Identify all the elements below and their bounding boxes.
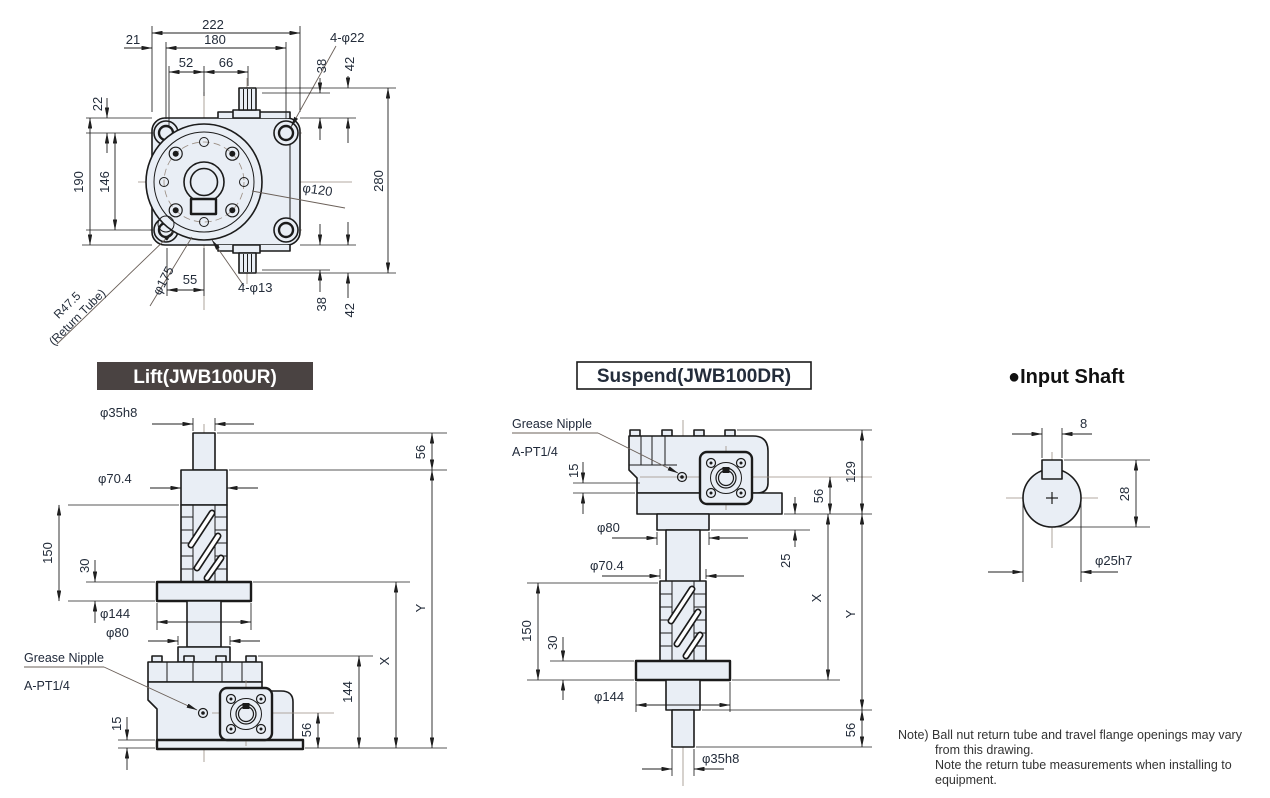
- suspend-grease-label-2: A-PT1/4: [512, 445, 558, 459]
- dim-38-top: 38: [314, 59, 329, 73]
- lift-input-keyway: [243, 703, 250, 709]
- suspend-dim-129: 129: [843, 461, 858, 483]
- dim-190: 190: [71, 171, 86, 193]
- dim-38-bottom: 38: [314, 297, 329, 311]
- lift-dim-30: 30: [77, 559, 92, 573]
- lift-dim-56-bottom: 56: [299, 723, 314, 737]
- dim-d175: φ175: [149, 264, 176, 298]
- lift-dim-d144: φ144: [100, 606, 130, 621]
- dim-222: 222: [202, 17, 224, 32]
- worm-wheel-flange-top: [146, 124, 262, 240]
- note-line-1: Note) Ball nut return tube and travel fl…: [898, 728, 1270, 743]
- dim-d120: φ120: [302, 180, 334, 199]
- dim-21: 21: [126, 32, 140, 47]
- suspend-dim-Y: Y: [843, 609, 858, 618]
- lift-dim-d80: φ80: [106, 625, 129, 640]
- suspend-dim-X: X: [809, 593, 824, 602]
- suspend-title: Suspend(JWB100DR): [597, 366, 791, 387]
- input-dim-d25: φ25h7: [1095, 553, 1132, 568]
- technical-drawing: 222 180 21 52 66 4-φ22 38 42: [0, 0, 1270, 798]
- dim-42-top: 42: [342, 57, 357, 71]
- lift-grease-label-2: A-PT1/4: [24, 679, 70, 693]
- lift-screw-assembly: [157, 433, 251, 647]
- input-shaft-view: ●Input Shaft 8 28 φ25h7: [988, 366, 1150, 582]
- dim-280: 280: [371, 170, 386, 192]
- lift-dim-X: X: [377, 656, 392, 665]
- suspend-dim-d35: φ35h8: [702, 751, 739, 766]
- drawing-note: Note) Ball nut return tube and travel fl…: [898, 728, 1270, 788]
- lift-grease-label-1: Grease Nipple: [24, 651, 104, 665]
- input-dim-8: 8: [1080, 416, 1087, 431]
- lift-dim-d35: φ35h8: [100, 405, 137, 420]
- suspend-view: Suspend(JWB100DR): [512, 362, 872, 786]
- dim-55: 55: [183, 272, 197, 287]
- suspend-grease-label-1: Grease Nipple: [512, 417, 592, 431]
- dim-4xd22: 4-φ22: [330, 30, 364, 45]
- note-line-3: Note the return tube measurements when i…: [898, 758, 1270, 773]
- suspend-dim-56-top: 56: [811, 489, 826, 503]
- lift-base-plate: [157, 740, 303, 749]
- suspend-gearbox: [629, 430, 872, 530]
- note-line-2: from this drawing.: [898, 743, 1270, 758]
- lift-dim-56-top: 56: [413, 445, 428, 459]
- dim-52: 52: [179, 55, 193, 70]
- dim-66: 66: [219, 55, 233, 70]
- input-shaft-key: [1042, 460, 1062, 479]
- suspend-dim-150: 150: [519, 620, 534, 642]
- dim-146: 146: [97, 171, 112, 193]
- dim-22-left: 22: [90, 97, 105, 111]
- suspend-input-keyway: [723, 467, 730, 473]
- key-slot: [191, 199, 216, 214]
- suspend-dim-56-bottom: 56: [843, 723, 858, 737]
- lift-view: Lift(JWB100UR): [24, 362, 447, 770]
- suspend-screw-assembly: [636, 530, 730, 747]
- lift-travel-flange: [157, 582, 251, 601]
- lift-dim-15: 15: [109, 717, 124, 731]
- suspend-dim-d70: φ70.4: [590, 558, 624, 573]
- suspend-dim-25: 25: [778, 554, 793, 568]
- drawing-page: 222 180 21 52 66 4-φ22 38 42: [0, 0, 1270, 798]
- lift-dim-150: 150: [40, 542, 55, 564]
- lift-title: Lift(JWB100UR): [133, 367, 277, 388]
- suspend-dim-d144: φ144: [594, 689, 624, 704]
- suspend-dim-15: 15: [566, 464, 581, 478]
- input-dim-28: 28: [1117, 487, 1132, 501]
- suspend-travel-flange: [636, 661, 730, 680]
- dim-4xd13: 4-φ13: [238, 280, 272, 295]
- lift-dim-d70: φ70.4: [98, 471, 132, 486]
- note-line-4: equipment.: [898, 773, 1270, 788]
- top-view: 222 180 21 52 66 4-φ22 38 42: [46, 17, 396, 348]
- input-shaft-title: ●Input Shaft: [1008, 366, 1125, 388]
- suspend-dim-30: 30: [545, 636, 560, 650]
- suspend-dim-d80: φ80: [597, 520, 620, 535]
- lift-dim-144: 144: [340, 681, 355, 703]
- lift-dim-Y: Y: [413, 603, 428, 612]
- dim-42-bottom: 42: [342, 303, 357, 317]
- dim-180: 180: [204, 32, 226, 47]
- input-shaft-section: [1006, 452, 1098, 548]
